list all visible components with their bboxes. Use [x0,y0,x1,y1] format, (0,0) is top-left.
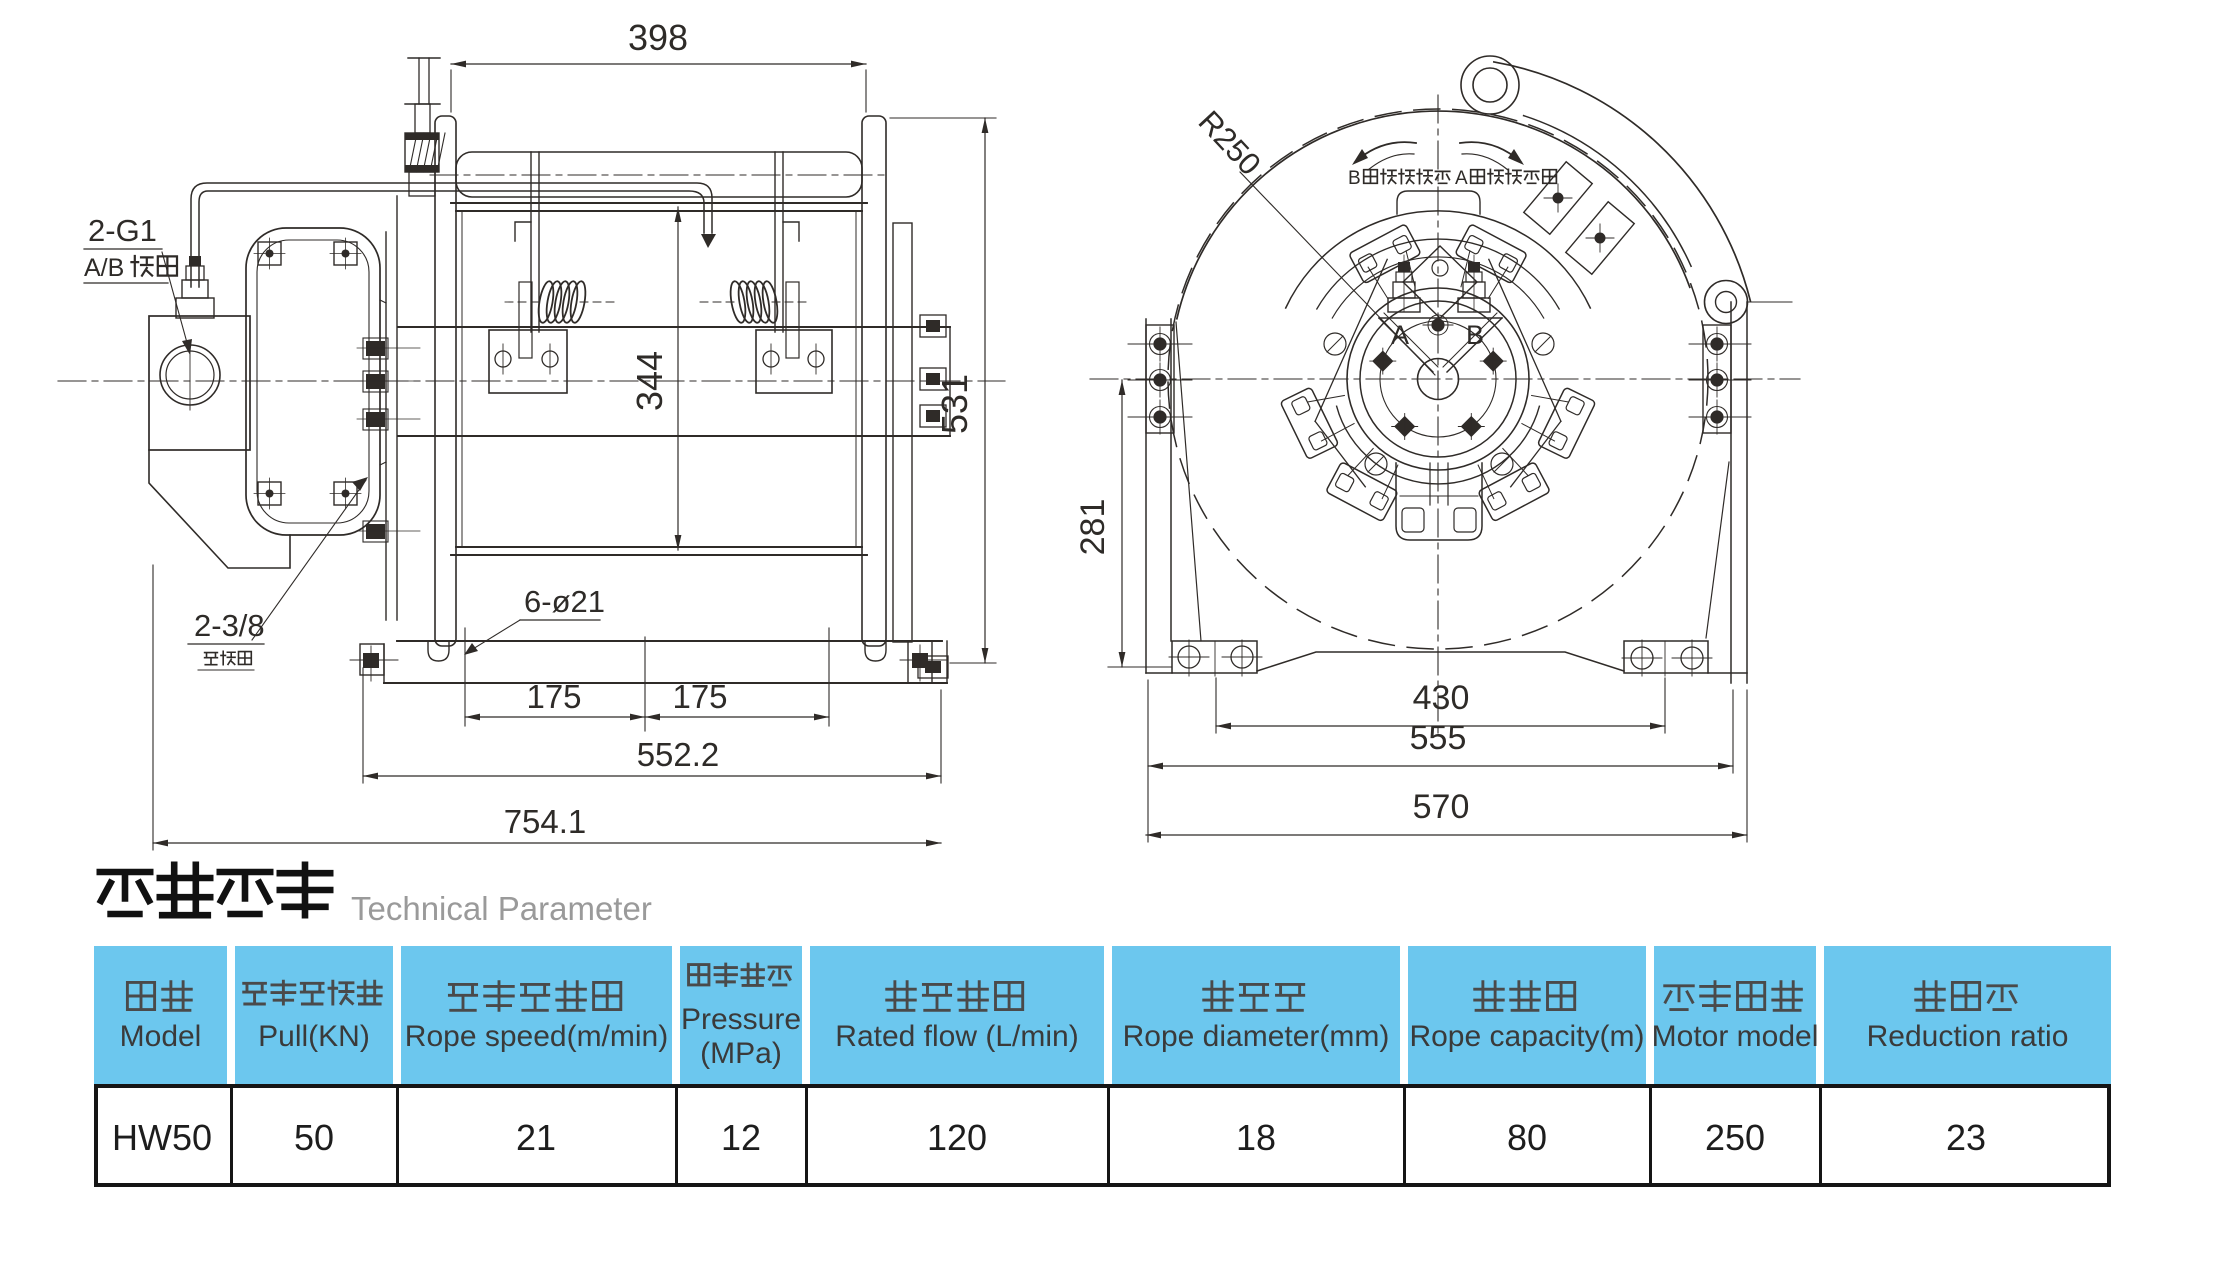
svg-text:398: 398 [628,17,688,58]
svg-text:2-G1: 2-G1 [88,213,157,248]
svg-text:Technical Parameter: Technical Parameter [351,890,652,927]
svg-text:B: B [1348,168,1361,189]
svg-text:552.2: 552.2 [637,736,720,773]
svg-text:A/B: A/B [84,254,124,282]
svg-text:754.1: 754.1 [504,803,587,840]
svg-text:6-ø21: 6-ø21 [524,584,605,619]
svg-text:A: A [1391,320,1409,350]
svg-text:A: A [1455,168,1468,189]
svg-text:B: B [1466,320,1484,350]
svg-text:555: 555 [1410,719,1467,757]
svg-text:281: 281 [1074,499,1112,556]
svg-text:570: 570 [1413,788,1470,826]
svg-text:430: 430 [1413,679,1470,717]
svg-text:R250: R250 [1192,104,1268,182]
svg-text:531: 531 [934,374,975,434]
